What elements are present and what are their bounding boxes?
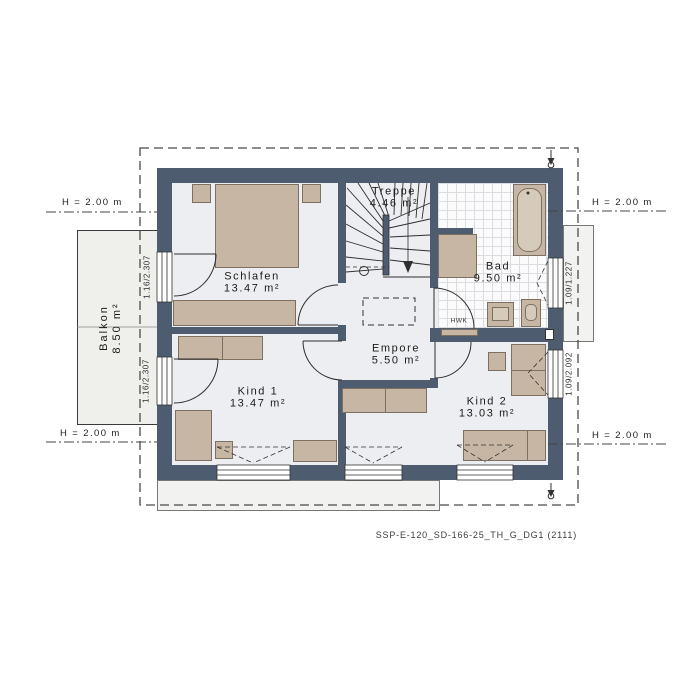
room-name: Schlafen [224, 272, 280, 284]
bed-kind1 [175, 410, 212, 461]
wardrobe-kind2-right [385, 388, 427, 413]
opening-label-balcony-door-kind1: 1.16/2.307 [142, 359, 151, 403]
desk-kind2-bottom [511, 370, 546, 396]
wall-niche [545, 329, 554, 340]
room-area: 8.50 m² [111, 302, 124, 353]
wall-stub-schlafen [338, 325, 346, 341]
downspout-symbol-bottom [548, 483, 555, 499]
height-label-left-bottom: H = 2.00 m [60, 428, 121, 439]
room-label-balkon: Balkon 8.50 m² [98, 302, 124, 353]
room-area: 4.46 m² [370, 198, 419, 210]
room-label-bad: Bad 9.50 m² [474, 262, 523, 285]
nightstand-right [302, 184, 321, 203]
room-name: Kind 1 [230, 387, 286, 399]
height-label-right-bottom: H = 2.00 m [592, 430, 653, 441]
opening-label-balcony-door-schlafen: 1.16/2.307 [143, 255, 152, 299]
hwk-label: HWK [451, 318, 468, 325]
washbasin-inner [492, 307, 509, 321]
desk-kind2-top [511, 344, 546, 371]
bathtub-inner [517, 188, 542, 252]
room-label-empore: Empore 5.50 m² [372, 344, 421, 367]
hwk-shelf [441, 329, 478, 336]
room-area: 5.50 m² [372, 355, 421, 367]
room-area: 9.50 m² [474, 273, 523, 285]
wardrobe-kind2-left [342, 388, 386, 413]
chair-kind2 [488, 352, 506, 371]
room-area: 13.03 m² [459, 408, 515, 420]
wall-schlafen-kind1 [172, 327, 338, 334]
wall-treppe-bad [430, 183, 438, 288]
toilet-inner [525, 304, 537, 321]
room-name: Kind 2 [459, 397, 515, 409]
room-name: Empore [372, 344, 421, 356]
height-label-right-top: H = 2.00 m [592, 197, 653, 208]
wall-schlafen-treppe [338, 183, 346, 283]
room-label-kind2: Kind 2 13.03 m² [459, 397, 515, 420]
room-name: Balkon [98, 302, 111, 353]
wall-empore-south [338, 380, 438, 388]
wardrobe-kind1-right [222, 336, 263, 360]
bed-schlafen [215, 184, 299, 268]
opening-label-window-kind2: 1.09/2.092 [565, 352, 574, 396]
desk-kind1 [293, 440, 337, 462]
dresser-schlafen [173, 300, 296, 326]
height-label-left-top: H = 2.00 m [62, 197, 123, 208]
drawing-caption: SSP-E-120_SD-166-25_TH_G_DG1 (2111) [376, 530, 577, 540]
shower [438, 234, 477, 278]
downspout-symbol-top [548, 150, 555, 168]
room-name: Bad [474, 262, 523, 274]
nightstand-kind1 [215, 441, 233, 459]
room-area: 13.47 m² [224, 283, 280, 295]
room-area: 13.47 m² [230, 398, 286, 410]
room-name: Treppe [370, 187, 419, 199]
room-label-treppe: Treppe 4.46 m² [370, 187, 419, 210]
opening-label-window-bad: 1.09/1.227 [565, 261, 574, 305]
room-label-kind1: Kind 1 13.47 m² [230, 387, 286, 410]
room-label-schlafen: Schlafen 13.47 m² [224, 272, 280, 295]
bed-kind2 [463, 430, 528, 461]
floor-plan-drawing: Schlafen 13.47 m² Treppe 4.46 m² Bad 9.5… [0, 0, 700, 700]
lower-roof-bottom [157, 480, 440, 511]
nightstand-left [192, 184, 211, 203]
bed-kind2-head [527, 430, 546, 461]
wardrobe-kind1-left [178, 336, 223, 360]
